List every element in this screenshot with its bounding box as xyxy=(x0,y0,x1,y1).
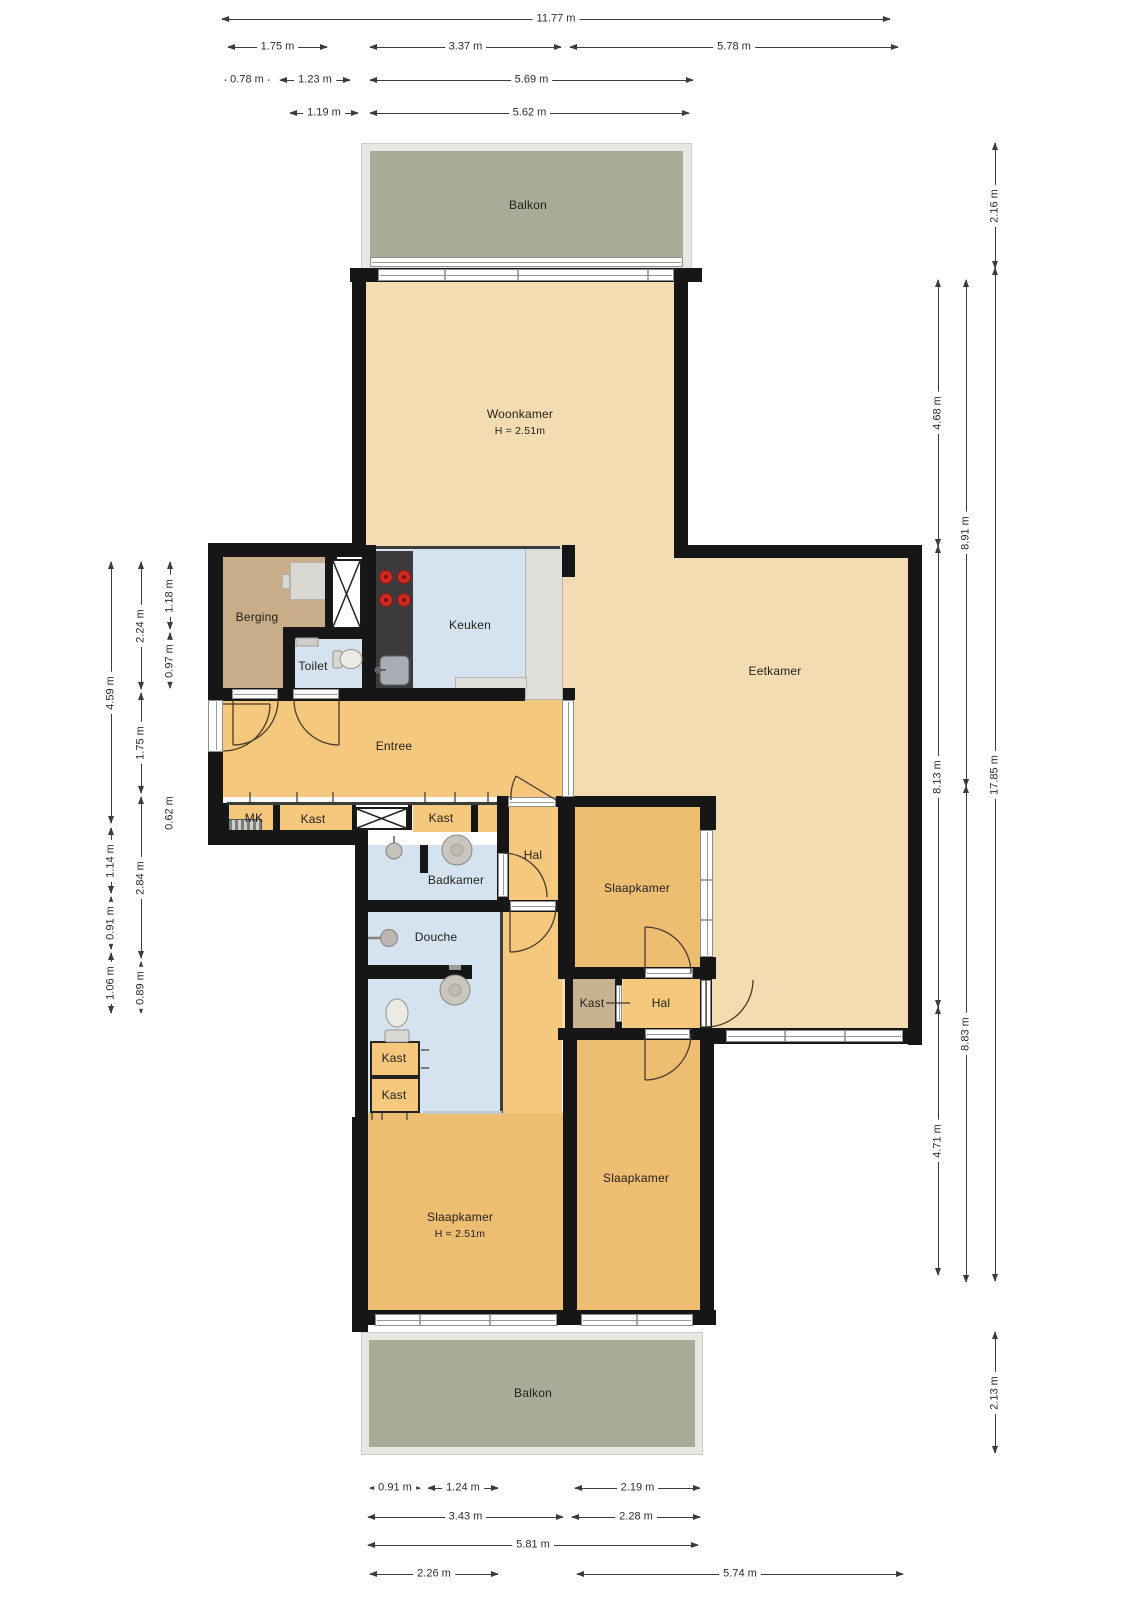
wall-segment xyxy=(674,282,688,558)
room-label-hal-boven: Hal xyxy=(524,848,543,862)
closet-front-line xyxy=(227,802,497,805)
dimension-label: 2.28 m xyxy=(615,1511,657,1524)
window-woonkamer-noord xyxy=(378,269,674,281)
shaft-box-1 xyxy=(331,559,362,629)
dimension-line: 5.69 m xyxy=(370,75,693,85)
dimension-line: 4.59 m xyxy=(106,562,116,823)
room-label-woonkamer: Woonkamer xyxy=(487,407,553,421)
floor-plan: Balkon Woonkamer H = 2.51m Berging Toile… xyxy=(0,0,1131,1600)
dimension-line: 0.89 m xyxy=(136,962,146,1013)
window-slaapkamer-links xyxy=(375,1314,557,1326)
dimension-line: 2.84 m xyxy=(136,797,146,958)
door-entree-hal xyxy=(508,797,556,807)
dimension-label: 8.91 m xyxy=(959,512,974,554)
dimension-label: 0.97 m xyxy=(163,640,178,682)
dimension-label: 2.19 m xyxy=(617,1482,659,1495)
bathroom-partition-line xyxy=(500,912,503,1113)
wall-segment xyxy=(908,558,922,1045)
room-label-douche: Douche xyxy=(415,930,458,944)
room-label-kast-entree-links: Kast xyxy=(301,812,326,826)
dimension-label: 4.71 m xyxy=(931,1120,946,1162)
room-label-balkon-top: Balkon xyxy=(509,198,547,212)
room-label-entree: Entree xyxy=(376,739,413,753)
wall-segment xyxy=(208,830,368,845)
wall-segment xyxy=(558,1028,716,1040)
opening-kast-hal xyxy=(616,985,622,1022)
door-toilet xyxy=(293,689,339,699)
dimension-line: 5.74 m xyxy=(577,1569,903,1579)
floor-slaapkamer-doorgang xyxy=(502,907,562,1113)
wall-segment xyxy=(355,830,368,1117)
room-label-hal-onder: Hal xyxy=(652,996,671,1010)
bathroom-floor-edge xyxy=(423,1111,502,1114)
wall-segment xyxy=(420,845,428,873)
door-badkamer xyxy=(498,853,508,897)
window-slaapkamer-rechts xyxy=(581,1314,693,1326)
wall-segment xyxy=(700,807,716,830)
dimension-label: 1.18 m xyxy=(163,575,178,617)
wall-segment xyxy=(208,543,366,557)
dimension-line: 3.37 m xyxy=(370,42,561,52)
wall-segment xyxy=(558,807,575,968)
dimension-line: 0.78 m xyxy=(225,75,269,85)
room-label-kast-badkamer-1: Kast xyxy=(382,1051,407,1065)
room-label-mk: MK xyxy=(245,811,263,825)
room-height-slaapkamer-links: H = 2.51m xyxy=(435,1228,486,1240)
dimension-label: 5.69 m xyxy=(511,74,553,87)
dimension-line: 1.75 m xyxy=(136,693,146,793)
door-entree-eetkamer xyxy=(562,700,574,797)
kitchen-counter-edge xyxy=(376,546,560,549)
room-label-toilet: Toilet xyxy=(298,659,327,673)
dimension-line: 4.68 m xyxy=(933,280,943,546)
dimension-line: 5.78 m xyxy=(570,42,898,52)
wall-segment xyxy=(362,545,376,688)
dimension-line: 1.18 m xyxy=(165,562,175,629)
dimension-line: 4.71 m xyxy=(933,1007,943,1275)
closet-klein xyxy=(478,805,497,832)
dimension-line: 2.24 m xyxy=(136,562,146,689)
room-label-eetkamer: Eetkamer xyxy=(749,664,802,678)
dimension-line: 11.77 m xyxy=(222,14,890,24)
room-label-kast-entree-rechts: Kast xyxy=(429,811,454,825)
dimension-line: 1.23 m xyxy=(280,75,350,85)
wall-segment xyxy=(700,1040,714,1310)
dimension-label: 11.77 m xyxy=(533,13,580,26)
wall-segment xyxy=(408,805,412,830)
dimension-label: 1.06 m xyxy=(104,962,119,1004)
dimension-line: 2.26 m xyxy=(370,1569,498,1579)
wall-segment xyxy=(223,803,229,832)
dimension-line: 5.62 m xyxy=(370,108,689,118)
dimension-label: 3.43 m xyxy=(445,1511,487,1524)
dimension-label: 2.84 m xyxy=(134,857,149,899)
front-door-band xyxy=(208,700,223,752)
dimension-label: 1.14 m xyxy=(104,840,119,882)
dimension-line: 17.85 m xyxy=(990,268,1000,1281)
dimension-line: 1.19 m xyxy=(290,108,358,118)
wall-segment xyxy=(556,796,716,807)
window-eetkamer-zuid xyxy=(726,1030,903,1042)
room-label-keuken: Keuken xyxy=(449,618,491,632)
dimension-label: 0.91 m xyxy=(374,1482,416,1495)
room-label-kast-badkamer-2: Kast xyxy=(382,1088,407,1102)
wall-segment xyxy=(565,979,573,1028)
dimension-line: 2.13 m xyxy=(990,1332,1000,1453)
room-label-kast-hal: Kast xyxy=(580,996,605,1010)
wall-segment xyxy=(471,803,478,832)
dimension-label: 0.89 m xyxy=(134,967,149,1009)
dimension-label: 5.81 m xyxy=(512,1539,554,1552)
dimension-label: 1.19 m xyxy=(303,107,345,120)
berging-cabinet-small xyxy=(282,574,290,589)
room-label-slaapkamer-rechts: Slaapkamer xyxy=(603,1171,669,1185)
dimension-line: 0.91 m xyxy=(106,897,116,949)
dimension-label: 8.13 m xyxy=(931,756,946,798)
dimension-label: 0.78 m xyxy=(226,74,268,87)
door-berging xyxy=(232,689,278,699)
dimension-label: 1.75 m xyxy=(134,722,149,764)
room-label-balkon-onder: Balkon xyxy=(514,1386,552,1400)
dimension-label: 4.59 m xyxy=(104,672,119,714)
dimension-line: 8.13 m xyxy=(933,546,943,1007)
wall-segment xyxy=(563,1040,577,1312)
kitchen-counter-dark xyxy=(376,551,413,688)
dimension-line: 3.43 m xyxy=(368,1512,563,1522)
dimension-label: 5.74 m xyxy=(719,1568,761,1581)
window-slaapkamer-midden xyxy=(700,830,713,957)
dimension-line: 2.28 m xyxy=(572,1512,700,1522)
dimension-label: 5.62 m xyxy=(509,107,551,120)
wall-segment xyxy=(273,803,280,832)
dimension-label: 3.37 m xyxy=(445,41,487,54)
shaft-box-2 xyxy=(355,807,408,830)
dimension-label: 2.26 m xyxy=(413,1568,455,1581)
dimension-line: 1.24 m xyxy=(428,1483,498,1493)
dimension-line: 8.91 m xyxy=(961,280,971,786)
dimension-label: 8.83 m xyxy=(959,1013,974,1055)
wall-segment xyxy=(562,545,575,577)
dimension-line: 1.06 m xyxy=(106,953,116,1013)
dimension-line: 1.14 m xyxy=(106,828,116,893)
dimension-line: 2.19 m xyxy=(575,1483,700,1493)
room-label-slaapkamer-links: Slaapkamer xyxy=(427,1210,493,1224)
dimension-label: 2.16 m xyxy=(988,185,1003,227)
dimension-label: 1.24 m xyxy=(442,1482,484,1495)
wall-segment xyxy=(563,688,575,700)
dimension-line: 1.75 m xyxy=(228,42,327,52)
wall-segment xyxy=(688,545,922,558)
dimension-line: 0.97 m xyxy=(165,633,175,688)
room-label-berging: Berging xyxy=(236,610,279,624)
dimension-line: 2.16 m xyxy=(990,143,1000,268)
dimension-label: 0.62 m xyxy=(163,792,178,834)
dimension-label: 0.91 m xyxy=(104,902,119,944)
dimension-label: 5.78 m xyxy=(713,41,755,54)
dimension-label: 1.75 m xyxy=(257,41,299,54)
wall-segment xyxy=(352,1117,368,1332)
wall-segment xyxy=(352,282,366,557)
door-slaapkamer-rechts xyxy=(645,1029,690,1039)
wall-segment xyxy=(368,965,472,979)
dimension-line: 5.81 m xyxy=(368,1540,698,1550)
dimension-line: 0.62 m xyxy=(165,795,175,830)
dimension-label: 2.24 m xyxy=(134,605,149,647)
dimension-label: 17.85 m xyxy=(988,751,1003,799)
door-slaapkamer-midden xyxy=(645,968,693,978)
dimension-label: 2.13 m xyxy=(988,1372,1003,1414)
dimension-line: 8.83 m xyxy=(961,786,971,1282)
door-hal-doorgang xyxy=(510,901,556,911)
room-label-badkamer: Badkamer xyxy=(428,873,484,887)
door-hal-eetkamer xyxy=(701,980,711,1027)
berging-cabinet xyxy=(290,562,330,600)
room-height-woonkamer: H = 2.51m xyxy=(495,425,546,437)
dimension-line: 0.91 m xyxy=(370,1483,420,1493)
room-label-slaapkamer-midden: Slaapkamer xyxy=(604,881,670,895)
kitchen-counter-light xyxy=(525,548,563,700)
balcony-top-door-band xyxy=(370,257,683,267)
dimension-label: 4.68 m xyxy=(931,392,946,434)
dimension-label: 1.23 m xyxy=(294,74,336,87)
